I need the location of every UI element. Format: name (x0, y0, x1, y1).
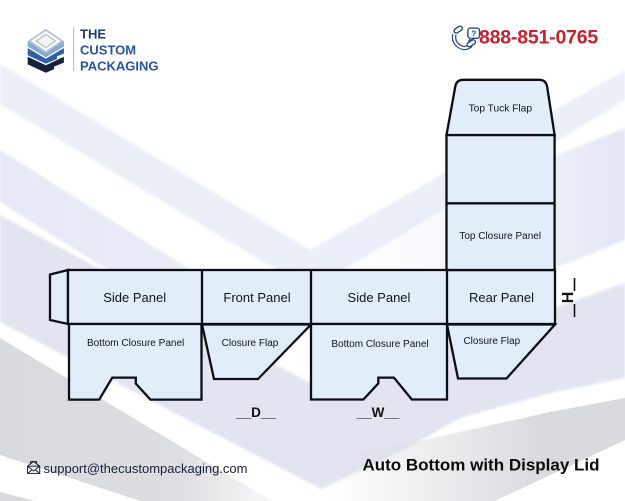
svg-text:PACKAGING: PACKAGING (80, 59, 158, 74)
svg-text:?: ? (471, 29, 476, 38)
svg-text:__W__: __W__ (356, 405, 400, 420)
svg-text:Side Panel: Side Panel (348, 290, 411, 305)
svg-text:Closure Flap: Closure Flap (222, 338, 279, 349)
svg-text:Auto Bottom with Display Lid: Auto Bottom with Display Lid (362, 456, 599, 475)
svg-text:Bottom Closure Panel: Bottom Closure Panel (331, 339, 428, 350)
svg-text:Rear Panel: Rear Panel (469, 290, 534, 305)
svg-text:__D__: __D__ (235, 405, 276, 420)
svg-text:Top Tuck Flap: Top Tuck Flap (469, 103, 533, 114)
svg-text:CUSTOM: CUSTOM (80, 43, 136, 58)
svg-text:Bottom Closure Panel: Bottom Closure Panel (87, 338, 184, 349)
svg-text:THE: THE (80, 27, 106, 42)
svg-text:H: H (560, 292, 577, 304)
svg-text:Side Panel: Side Panel (103, 290, 166, 305)
svg-text:Top Closure Panel: Top Closure Panel (459, 231, 541, 242)
svg-text:support@thecustompackaging.com: support@thecustompackaging.com (44, 461, 248, 476)
svg-text:888-851-0765: 888-851-0765 (479, 27, 598, 49)
svg-text:Closure Flap: Closure Flap (463, 336, 520, 347)
svg-text:Front Panel: Front Panel (223, 290, 290, 305)
